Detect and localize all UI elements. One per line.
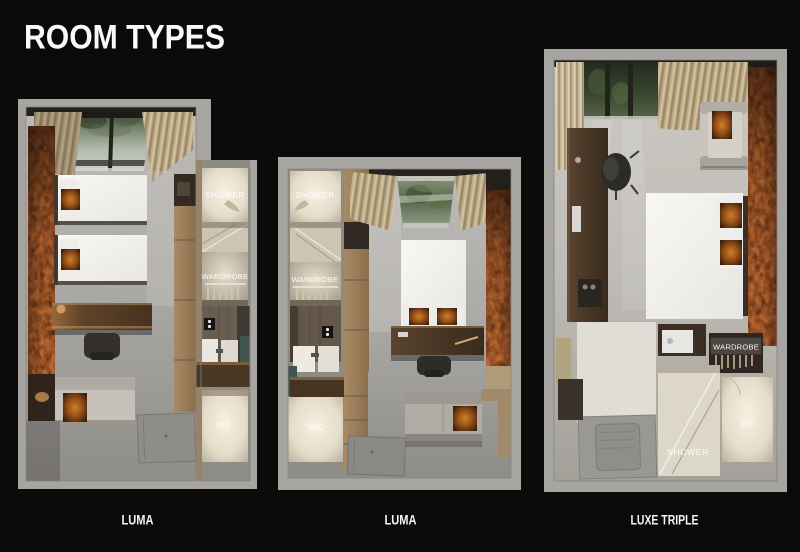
- svg-text:LUMA: LUMA: [122, 513, 154, 528]
- svg-text:WC: WC: [308, 422, 324, 432]
- svg-text:WARDROBE: WARDROBE: [713, 343, 759, 352]
- svg-text:WARDROBE: WARDROBE: [202, 272, 249, 281]
- svg-text:WC: WC: [216, 420, 232, 430]
- svg-text:SHOWER: SHOWER: [205, 191, 245, 200]
- svg-text:SHOWER: SHOWER: [667, 447, 709, 457]
- svg-text:LUXE TRIPLE: LUXE TRIPLE: [631, 513, 699, 528]
- svg-text:LUMA: LUMA: [385, 513, 417, 528]
- svg-text:WC: WC: [740, 419, 756, 429]
- svg-text:SHOWER: SHOWER: [295, 191, 335, 200]
- svg-text:ROOM TYPES: ROOM TYPES: [24, 19, 225, 57]
- svg-text:WARDROBE: WARDROBE: [292, 275, 339, 284]
